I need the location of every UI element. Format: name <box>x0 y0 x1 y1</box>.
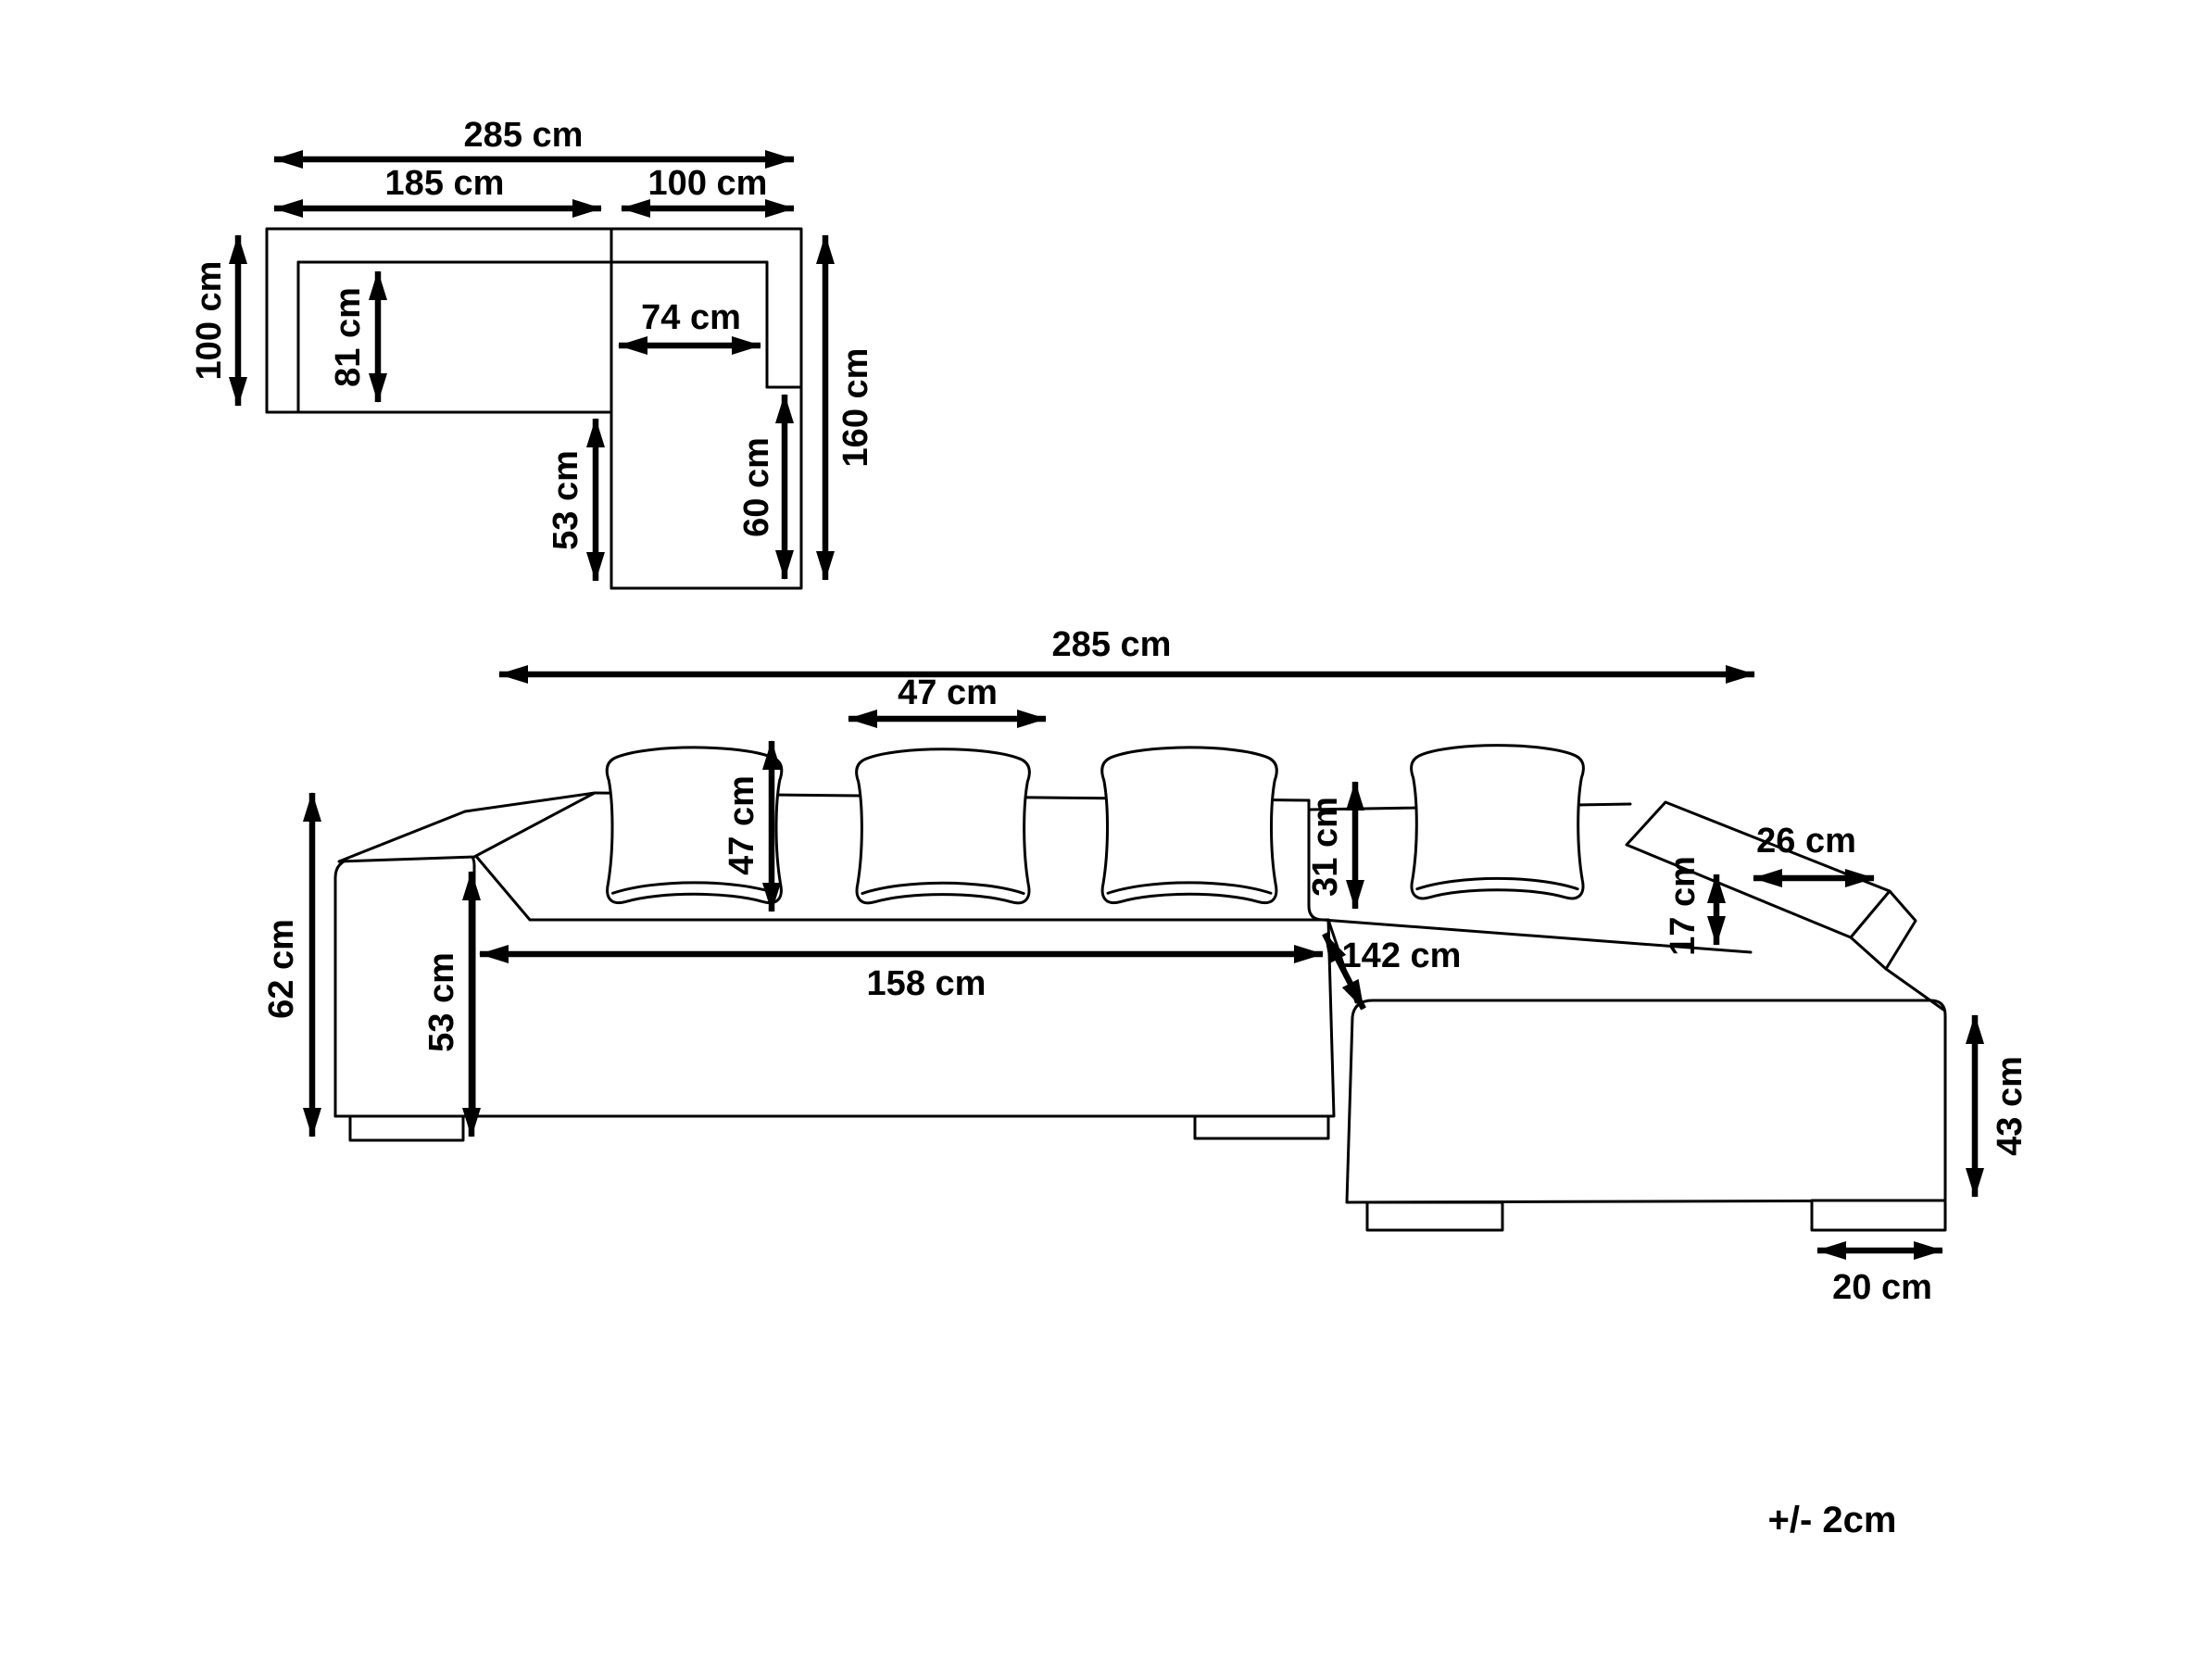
diagram-svg: 285 cm 185 cm 100 cm 100 cm 81 cm 74 cm … <box>0 0 2212 1659</box>
front-chaise-side-height-label: 43 cm <box>1991 1056 2030 1156</box>
front-dim-total-height: 62 cm <box>262 793 312 1137</box>
cushion-2 <box>857 749 1030 903</box>
plan-chaise-extension-label: 53 cm <box>547 450 585 550</box>
front-total-width-label: 285 cm <box>1052 625 1172 664</box>
plan-body-width-label: 185 cm <box>385 164 505 203</box>
tolerance-note: +/- 2cm <box>1768 1500 1897 1540</box>
plan-sofa-outline <box>267 229 801 588</box>
plan-dim-chaise-extension: 53 cm <box>547 419 596 581</box>
plan-dim-body-depth: 100 cm <box>190 235 238 406</box>
plan-body-depth-label: 100 cm <box>190 261 229 381</box>
front-cushion-height-label: 47 cm <box>723 775 761 875</box>
chaise-left-foot <box>1367 1202 1502 1230</box>
middle-foot <box>1195 1116 1328 1138</box>
front-dim-foot-width: 20 cm <box>1817 1251 1942 1307</box>
front-outline <box>335 746 1945 1230</box>
front-right-armrest-above-seat-label: 17 cm <box>1664 856 1703 956</box>
plan-dim-total-width: 285 cm <box>274 116 794 159</box>
plan-total-depth-label: 160 cm <box>836 348 875 468</box>
plan-view: 285 cm 185 cm 100 cm 100 cm 81 cm 74 cm … <box>190 116 875 588</box>
plan-dim-total-depth: 160 cm <box>825 235 875 580</box>
front-dim-chaise-side-height: 43 cm <box>1975 1015 2030 1197</box>
plan-outline <box>267 229 801 588</box>
front-dim-cushion-width: 47 cm <box>848 673 1046 719</box>
chaise-body <box>1347 1000 1945 1202</box>
plan-section-width-label: 100 cm <box>648 164 768 203</box>
plan-seat-depth-label: 81 cm <box>329 287 368 387</box>
front-armrest-height-label: 53 cm <box>422 952 461 1052</box>
plan-dim-body-width: 185 cm <box>274 164 601 208</box>
sofa-dimension-diagram: 285 cm 185 cm 100 cm 100 cm 81 cm 74 cm … <box>0 0 2212 1659</box>
front-seat-front-width-label: 158 cm <box>867 964 987 1003</box>
plan-chaise-seat-depth-label: 60 cm <box>737 437 776 537</box>
front-dim-total-width: 285 cm <box>499 625 1754 674</box>
front-chaise-length-label: 142 cm <box>1342 936 1462 975</box>
plan-total-width-label: 285 cm <box>464 116 584 155</box>
front-total-height-label: 62 cm <box>262 919 301 1019</box>
front-cushion-width-label: 47 cm <box>898 673 998 712</box>
front-foot-width-label: 20 cm <box>1832 1268 1932 1307</box>
cushion-3 <box>1102 748 1277 903</box>
plan-corner-seat-width-label: 74 cm <box>641 298 741 337</box>
front-dim-seat-front-width: 158 cm <box>480 954 1323 1003</box>
chaise-right-foot <box>1812 1200 1945 1230</box>
plan-dim-section-width: 100 cm <box>622 164 794 208</box>
front-right-armrest-width-label: 26 cm <box>1756 822 1856 861</box>
left-foot <box>350 1116 463 1140</box>
cushion-4 <box>1412 746 1584 899</box>
front-view: 285 cm 47 cm 47 cm 62 cm 53 cm 158 cm 14… <box>262 625 2030 1307</box>
front-dim-chaise-length: 142 cm <box>1325 934 1461 1009</box>
front-dim-backrest-height: 31 cm <box>1306 782 1355 909</box>
left-armrest-top <box>339 793 595 861</box>
front-backrest-height-label: 31 cm <box>1306 797 1345 897</box>
